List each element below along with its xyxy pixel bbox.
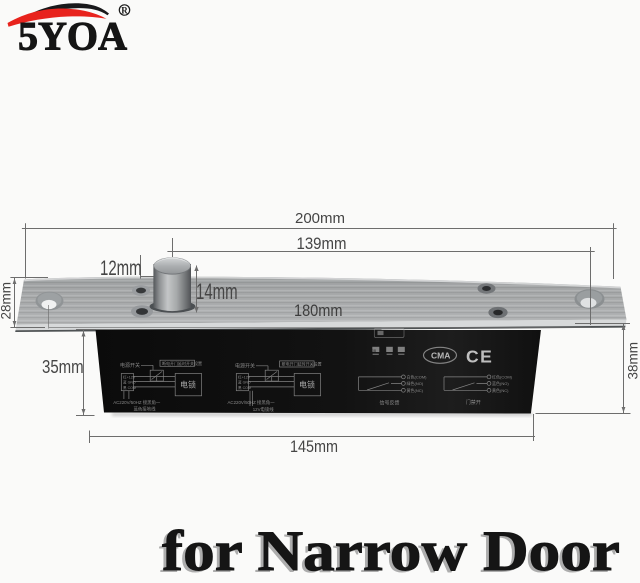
svg-text:黑 COM: 黑 COM [123, 386, 136, 390]
svg-text:黄色(NC): 黄色(NC) [407, 387, 424, 393]
svg-text:AC220V/50HZ 接黑角一: AC220V/50HZ 接黑角一 [228, 399, 276, 406]
svg-text:断电开门延时开关设置: 断电开门延时开关设置 [282, 361, 322, 367]
svg-text:黄色(NC): 黄色(NC) [492, 387, 509, 393]
svg-text:电锁: 电锁 [180, 380, 196, 390]
svg-text:电源开关: 电源开关 [120, 362, 140, 369]
svg-text:蓝 GND: 蓝 GND [238, 380, 251, 385]
svg-text:红+12V: 红+12V [123, 375, 136, 380]
svg-text:12V电锁线: 12V电锁线 [253, 406, 275, 413]
svg-text:黑 COM: 黑 COM [238, 386, 251, 390]
svg-text:白色(COM): 白色(COM) [407, 374, 428, 380]
svg-text:0B: 0B [372, 349, 377, 353]
svg-text:CE: CE [466, 347, 493, 367]
svg-text:电源开关: 电源开关 [235, 363, 255, 370]
svg-text:断电开门延时开关设置: 断电开门延时开关设置 [162, 360, 202, 366]
svg-text:门禁开: 门禁开 [466, 399, 481, 406]
svg-text:蓝 GND: 蓝 GND [123, 380, 136, 385]
svg-text:蓝色(NO): 蓝色(NO) [492, 380, 509, 386]
svg-text:红+12V: 红+12V [238, 375, 251, 380]
svg-text:5YOA: 5YOA [18, 14, 127, 59]
svg-text:绿色(NO): 绿色(NO) [407, 380, 424, 386]
svg-text:AC220V/50HZ 接黑角一: AC220V/50HZ 接黑角一 [113, 399, 161, 406]
svg-text:信号反馈: 信号反馈 [380, 400, 400, 407]
svg-text:蓝色接地线: 蓝色接地线 [134, 405, 157, 412]
svg-text:CMA: CMA [431, 350, 450, 360]
svg-text:红色(COM): 红色(COM) [492, 374, 513, 380]
svg-text:电锁: 电锁 [299, 380, 315, 390]
